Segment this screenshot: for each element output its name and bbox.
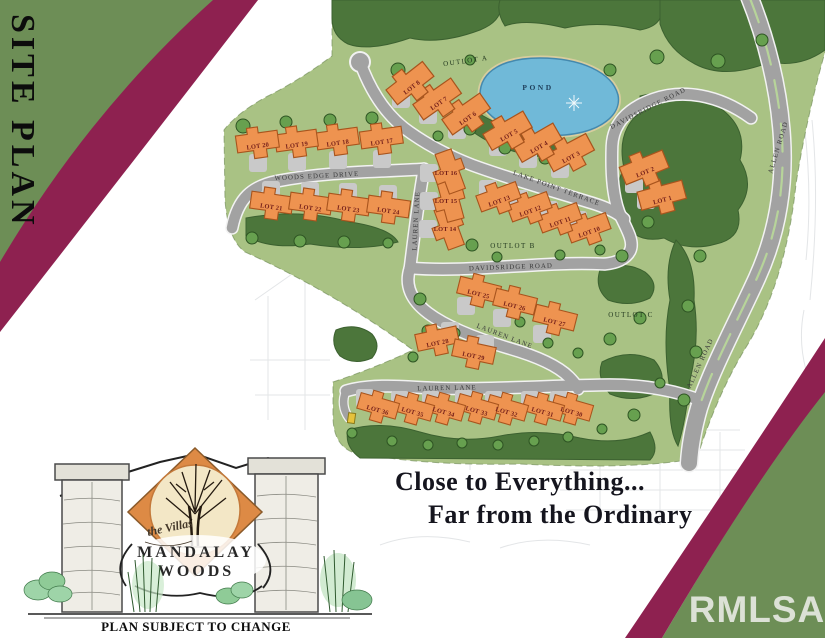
entrance-sign-sketch: the Villas MANDALAY WOODS PLAN SUBJECT T… bbox=[24, 448, 372, 634]
tree-icon bbox=[756, 34, 768, 46]
tagline: Close to Everything... Far from the Ordi… bbox=[395, 467, 692, 529]
tagline-line1: Close to Everything... bbox=[395, 467, 645, 496]
tree-icon bbox=[711, 54, 725, 68]
tree-icon bbox=[642, 216, 654, 228]
tree-icon bbox=[628, 409, 640, 421]
lot-label: LOT 14 bbox=[434, 226, 457, 233]
tree-icon bbox=[655, 378, 665, 388]
tree-icon bbox=[694, 250, 706, 262]
tree-icon bbox=[597, 424, 607, 434]
pond-label: POND bbox=[522, 83, 553, 92]
tree-icon bbox=[246, 232, 258, 244]
outlot-label: OUTLOT B bbox=[490, 242, 536, 250]
disclaimer-text: PLAN SUBJECT TO CHANGE bbox=[101, 619, 291, 634]
tree-icon bbox=[616, 250, 628, 262]
tree-icon bbox=[604, 333, 616, 345]
tree-icon bbox=[294, 235, 306, 247]
tree-icon bbox=[366, 112, 378, 124]
tree-icon bbox=[529, 436, 539, 446]
tree-icon bbox=[493, 440, 503, 450]
tree-icon bbox=[678, 394, 690, 406]
tree-icon bbox=[457, 438, 467, 448]
right-pillar bbox=[248, 458, 325, 612]
entrance-marker bbox=[347, 413, 355, 424]
tree-icon bbox=[387, 436, 397, 446]
tree-icon bbox=[433, 131, 443, 141]
logo-name-line1: MANDALAY bbox=[137, 544, 255, 561]
tree-icon bbox=[414, 293, 426, 305]
tree-icon bbox=[543, 338, 553, 348]
tree-icon bbox=[604, 64, 616, 76]
road-name-label: LAUREN LANE bbox=[417, 384, 477, 392]
tree-icon bbox=[338, 236, 350, 248]
tree-icon bbox=[423, 440, 433, 450]
page-title: SITE PLAN bbox=[4, 14, 41, 229]
tree-icon bbox=[347, 428, 357, 438]
site-map: LOT 1LOT 2LOT 3LOT 4LOT 5LOT 6LOT 7LOT 8… bbox=[224, 0, 825, 466]
site-plan-flyer: LOT 1LOT 2LOT 3LOT 4LOT 5LOT 6LOT 7LOT 8… bbox=[0, 0, 825, 638]
tree-icon bbox=[466, 239, 478, 251]
corner-banner: SITE PLAN bbox=[0, 0, 258, 332]
lot-label: LOT 15 bbox=[435, 198, 458, 205]
tree-icon bbox=[408, 352, 418, 362]
outlot-label: OUTLOT C bbox=[608, 311, 654, 319]
tree-icon bbox=[383, 238, 393, 248]
tree-icon bbox=[280, 116, 292, 128]
watermark: RMLSA bbox=[689, 589, 825, 630]
tree-icon bbox=[555, 250, 565, 260]
tree-icon bbox=[682, 300, 694, 312]
flyer-canvas: LOT 1LOT 2LOT 3LOT 4LOT 5LOT 6LOT 7LOT 8… bbox=[0, 0, 825, 638]
tree-icon bbox=[573, 348, 583, 358]
lot-label: LOT 16 bbox=[435, 170, 458, 177]
logo-name-line2: WOODS bbox=[158, 563, 234, 580]
tree-icon bbox=[595, 245, 605, 255]
tree-icon bbox=[563, 432, 573, 442]
tree-icon bbox=[492, 252, 502, 262]
tagline-line2: Far from the Ordinary bbox=[428, 500, 692, 529]
tree-icon bbox=[650, 50, 664, 64]
